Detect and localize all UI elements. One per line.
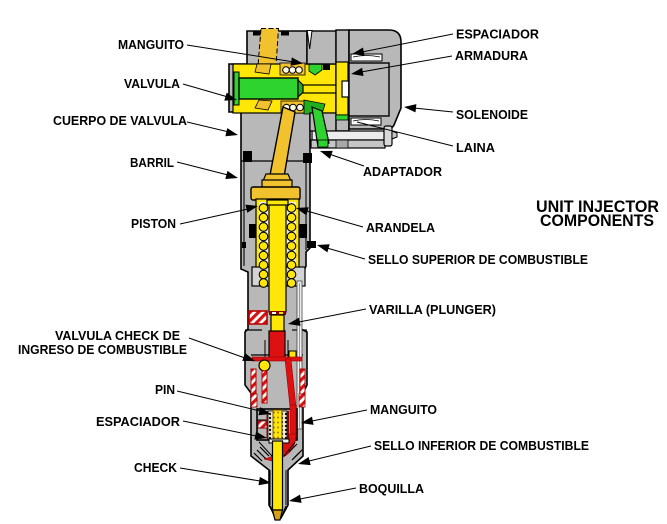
- svg-text:ARANDELA: ARANDELA: [366, 220, 436, 235]
- svg-text:PISTON: PISTON: [131, 216, 176, 231]
- svg-text:SELLO INFERIOR DE COMBUSTIBLE: SELLO INFERIOR DE COMBUSTIBLE: [374, 438, 589, 453]
- svg-text:COMPONENTS: COMPONENTS: [540, 211, 654, 230]
- svg-text:BARRIL: BARRIL: [130, 155, 174, 170]
- svg-text:CHECK: CHECK: [134, 460, 178, 475]
- svg-text:ADAPTADOR: ADAPTADOR: [363, 164, 443, 179]
- svg-text:MANGUITO: MANGUITO: [118, 37, 184, 52]
- svg-text:MANGUITO: MANGUITO: [370, 402, 437, 417]
- svg-text:VALVULA CHECK DE: VALVULA CHECK DE: [55, 328, 180, 343]
- svg-text:PIN: PIN: [155, 382, 175, 397]
- svg-text:ESPACIADOR: ESPACIADOR: [456, 27, 540, 42]
- svg-text:CUERPO DE VALVULA: CUERPO DE VALVULA: [53, 113, 188, 128]
- svg-text:INGRESO DE COMBUSTIBLE: INGRESO DE COMBUSTIBLE: [18, 342, 187, 357]
- svg-text:VARILLA (PLUNGER): VARILLA (PLUNGER): [369, 302, 496, 317]
- svg-text:SELLO SUPERIOR DE COMBUSTIBLE: SELLO SUPERIOR DE COMBUSTIBLE: [368, 252, 588, 267]
- svg-text:ESPACIADOR: ESPACIADOR: [96, 414, 181, 429]
- svg-text:LAINA: LAINA: [456, 140, 496, 155]
- svg-text:VALVULA: VALVULA: [124, 76, 181, 91]
- svg-text:SOLENOIDE: SOLENOIDE: [456, 107, 528, 122]
- svg-text:ARMADURA: ARMADURA: [455, 48, 529, 63]
- svg-text:BOQUILLA: BOQUILLA: [359, 481, 425, 496]
